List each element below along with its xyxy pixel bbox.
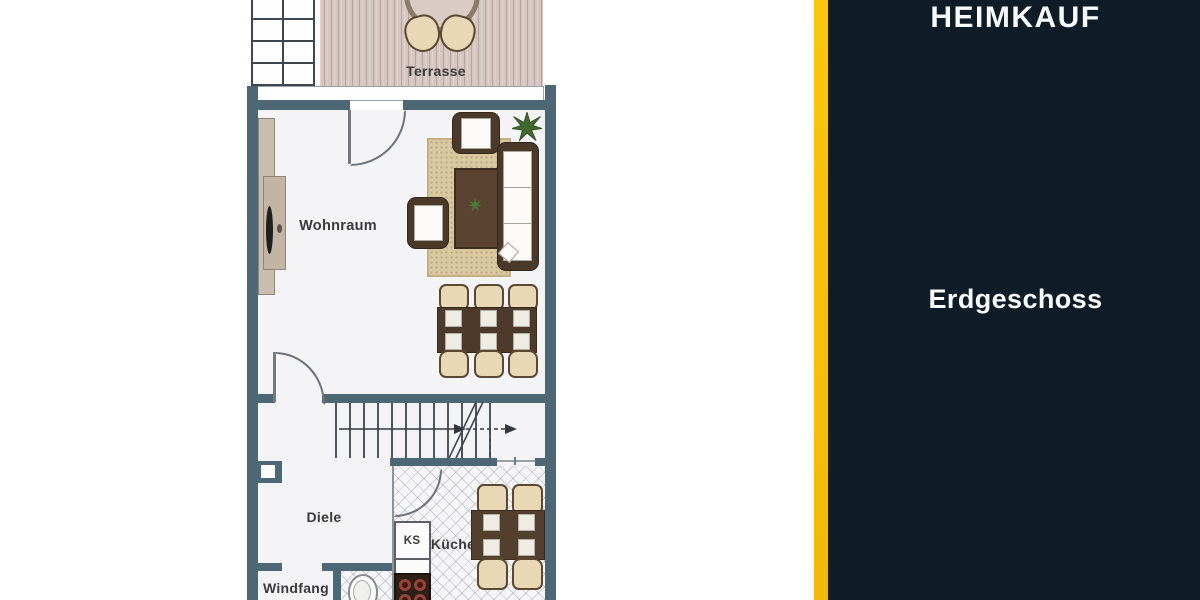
armchair-left-cushion	[414, 205, 443, 241]
stove-burner	[399, 579, 411, 591]
wall-below-stairs-right	[535, 458, 545, 466]
ks-label: KS	[404, 535, 421, 547]
kitchen-seat-pad	[518, 539, 535, 556]
terrace-step-band	[251, 86, 544, 101]
kitchen-chair	[477, 558, 508, 590]
sideboard-knob	[277, 224, 282, 233]
sofa-cushion	[503, 187, 532, 225]
dining-seat-pad	[513, 310, 530, 327]
dining-seat-pad	[480, 310, 497, 327]
kitchen-chair	[512, 558, 543, 590]
windfang-wall-left	[247, 563, 282, 571]
kitchen-window-line	[497, 460, 537, 462]
kitchen-window-tick	[514, 457, 516, 465]
table-plant-icon	[468, 198, 482, 212]
kitchen-seat-pad	[483, 514, 500, 531]
dining-chair	[508, 350, 538, 378]
stove	[394, 573, 431, 600]
dining-seat-pad	[445, 333, 462, 350]
kitchen-seat-pad	[483, 539, 500, 556]
brand-panel: HEIMKAUF Erdgeschoss	[831, 0, 1200, 600]
sofa-cushion	[503, 151, 532, 189]
wall-mid-left	[247, 394, 275, 403]
corner-plant-icon	[512, 112, 542, 142]
kitchen-seat-pad	[518, 514, 535, 531]
dining-seat-pad	[445, 310, 462, 327]
wall-below-stairs	[390, 458, 497, 466]
armchair-top-cushion	[461, 118, 491, 149]
stove-burner	[414, 579, 426, 591]
exterior-stair-grid	[251, 0, 315, 88]
windfang-label: Windfang	[263, 580, 329, 596]
floor-title: Erdgeschoss	[831, 281, 1200, 317]
dining-seat-pad	[513, 333, 530, 350]
stove-burner	[399, 594, 411, 600]
wall-top-left	[247, 100, 350, 110]
wall-top-right	[403, 100, 556, 110]
kueche-label: Küche	[431, 536, 475, 552]
wohnraum-label: Wohnraum	[299, 218, 377, 234]
dining-chair	[474, 350, 504, 378]
wall-left	[247, 86, 258, 600]
stair-annotation	[335, 400, 525, 460]
diele-label: Diele	[307, 509, 342, 525]
dining-seat-pad	[480, 333, 497, 350]
toilet-bowl	[353, 580, 371, 600]
accent-stripe	[814, 0, 831, 600]
windfang-wall-right	[322, 563, 392, 571]
wall-right	[545, 85, 556, 600]
dining-chair	[439, 350, 469, 378]
terrasse-label: Terrasse	[406, 63, 466, 79]
page-background: Terrasse	[0, 0, 1200, 600]
floorplan-canvas: Terrasse	[0, 0, 815, 600]
brand-logo-text: HEIMKAUF	[831, 0, 1200, 36]
chimney-pillar-core	[261, 465, 275, 478]
stove-burner	[414, 594, 426, 600]
wc-wall-left	[333, 571, 341, 600]
tv-lens	[266, 206, 273, 254]
